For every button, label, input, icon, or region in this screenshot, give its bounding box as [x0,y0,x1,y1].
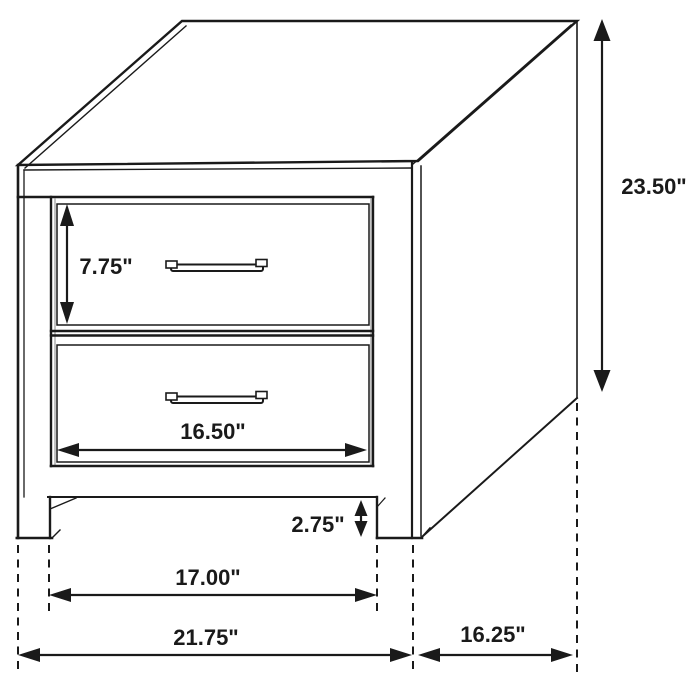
clearance-label: 2.75" [291,512,344,537]
drawer-1-handle-right-post [256,260,267,267]
leg-span-label: 17.00" [175,565,240,590]
overall-height-label: 23.50" [621,174,686,199]
drawer-2-handle-right-post [256,392,267,399]
nightstand-dimension-diagram: 7.75" 23.50" 16.50" 2.75" 17.00" 21.75" … [0,0,700,700]
drawer-1-handle-left-post [166,261,177,268]
drawer-height-label: 7.75" [79,254,132,279]
drawer-1-handle-bar [171,265,263,272]
drawer-2-handle-bar [171,397,263,404]
drawer-2-handle-left-post [166,393,177,400]
overall-width-label: 21.75" [173,625,238,650]
drawer-width-label: 16.50" [180,419,245,444]
diagram-canvas: 7.75" 23.50" 16.50" 2.75" 17.00" 21.75" … [0,0,700,700]
depth-label: 16.25" [460,622,525,647]
